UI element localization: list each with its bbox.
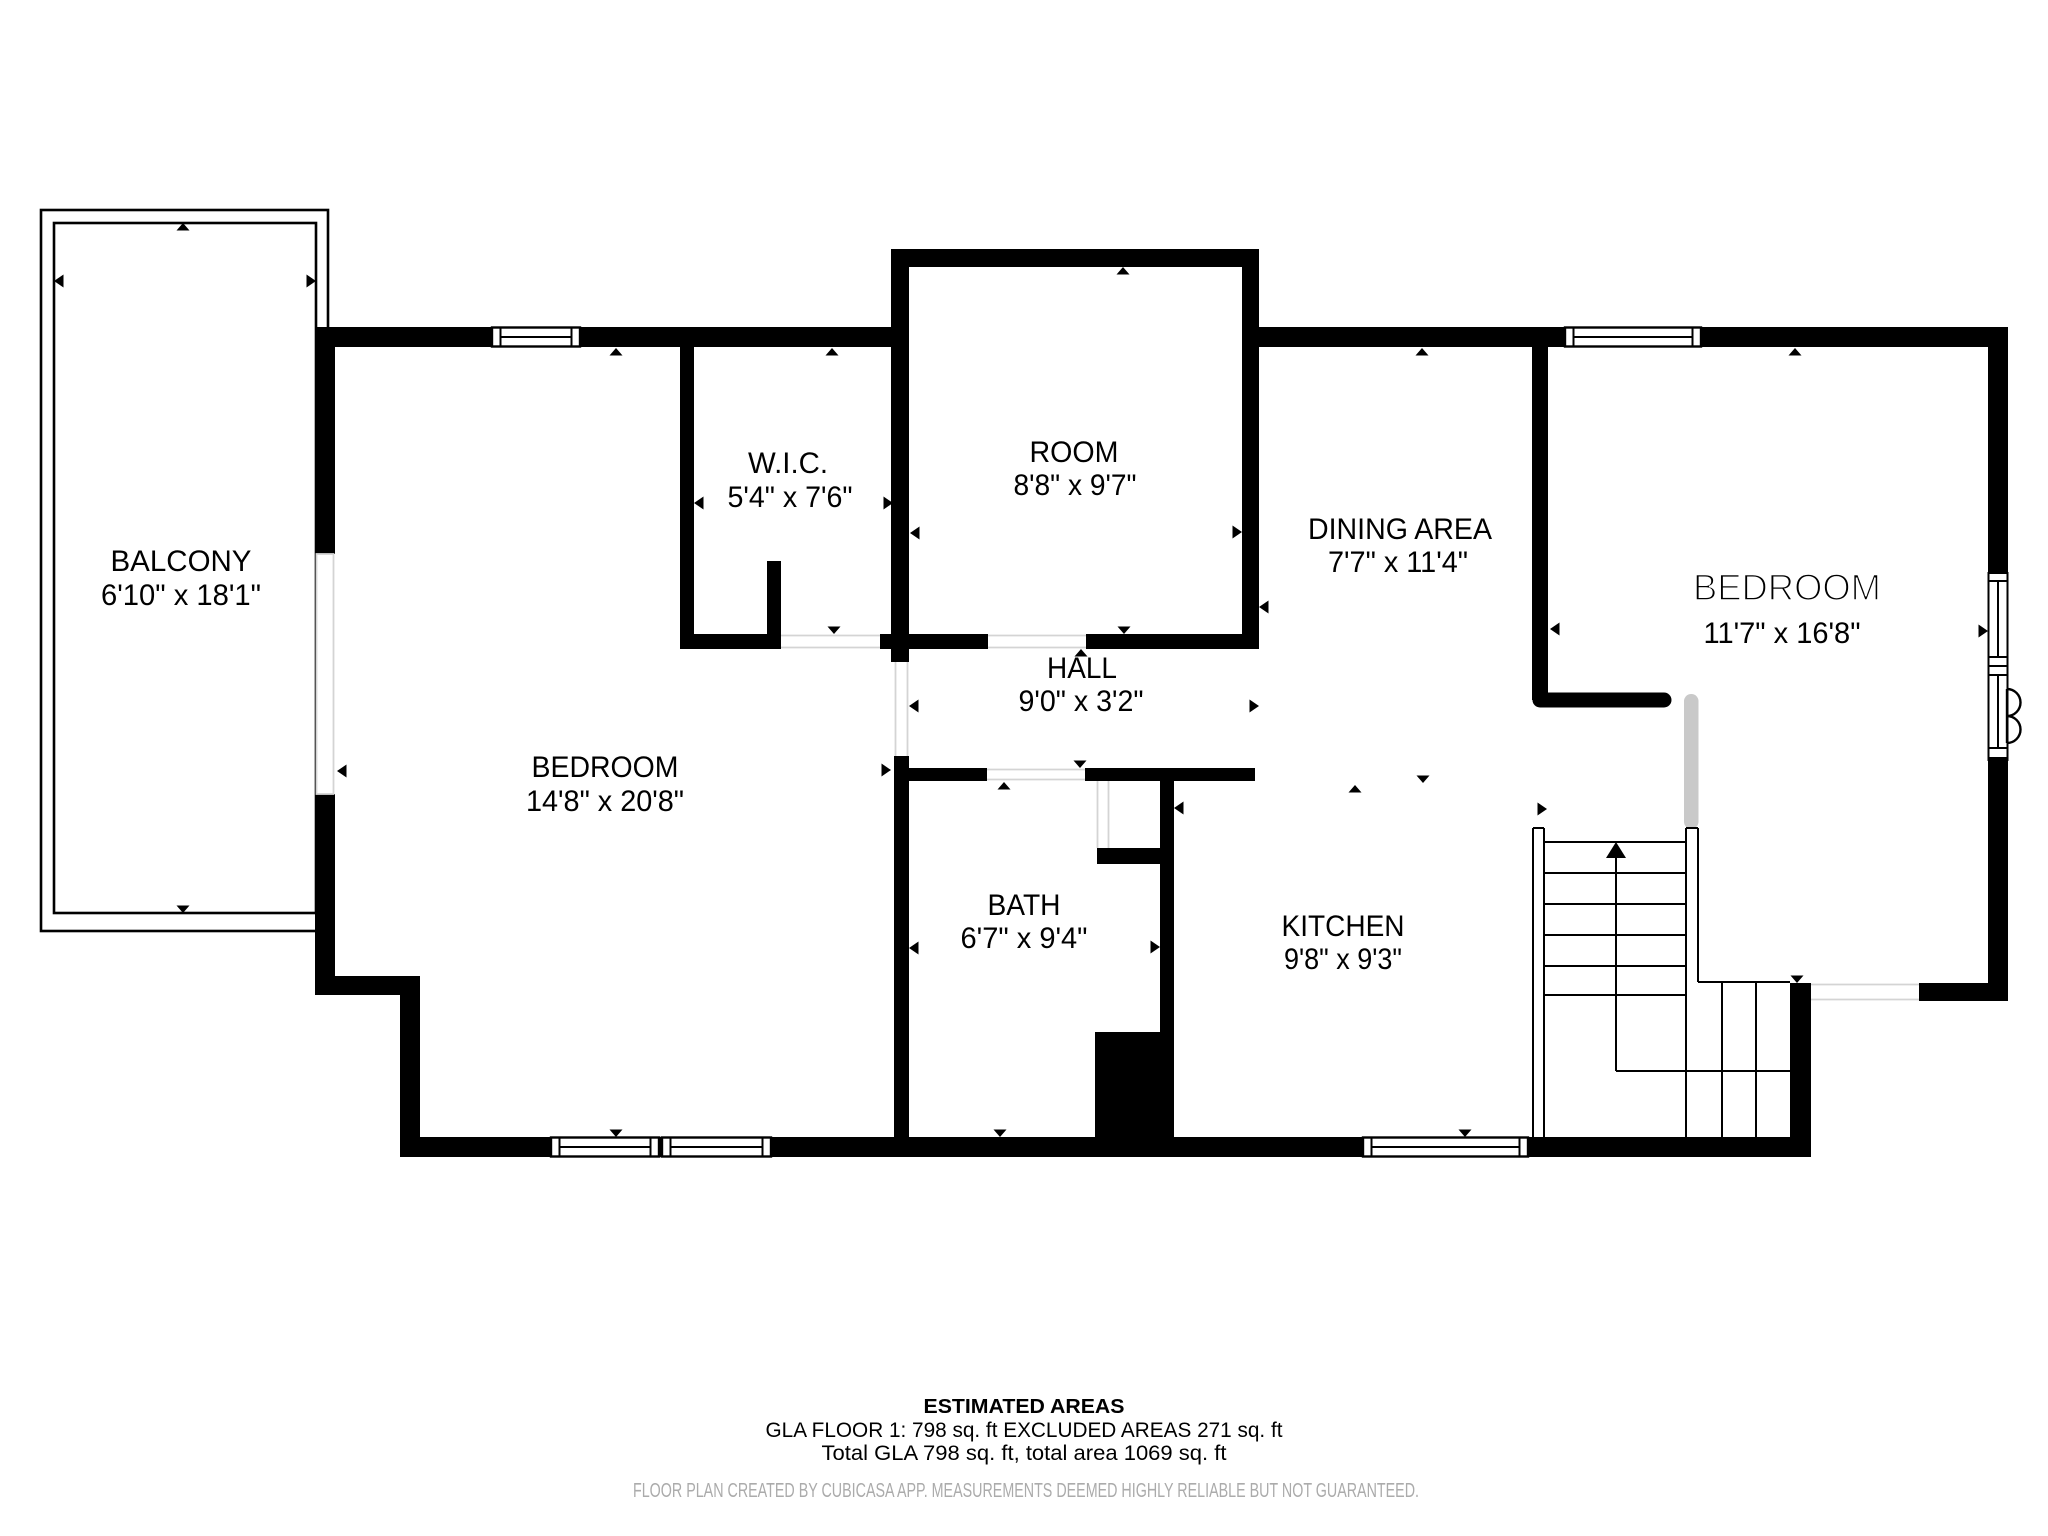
svg-text:6'10" x 18'1": 6'10" x 18'1" xyxy=(101,579,261,612)
svg-text:GLA FLOOR 1: 798 sq. ft EXCLUD: GLA FLOOR 1: 798 sq. ft EXCLUDED AREAS 2… xyxy=(766,1419,1283,1442)
svg-text:14'8" x 20'8": 14'8" x 20'8" xyxy=(526,785,684,818)
svg-text:BEDROOM: BEDROOM xyxy=(1693,567,1881,608)
svg-text:7'7" x 11'4": 7'7" x 11'4" xyxy=(1328,546,1468,579)
svg-text:HALL: HALL xyxy=(1047,652,1117,685)
svg-text:8'8" x 9'7": 8'8" x 9'7" xyxy=(1014,469,1137,502)
svg-text:11'7" x 16'8": 11'7" x 16'8" xyxy=(1704,617,1861,650)
svg-text:FLOOR PLAN CREATED BY CUBICASA: FLOOR PLAN CREATED BY CUBICASA APP. MEAS… xyxy=(633,1480,1419,1502)
svg-text:9'8" x 9'3": 9'8" x 9'3" xyxy=(1284,943,1402,976)
svg-text:5'4" x 7'6": 5'4" x 7'6" xyxy=(728,481,853,514)
svg-text:KITCHEN: KITCHEN xyxy=(1282,910,1405,943)
svg-text:BALCONY: BALCONY xyxy=(111,545,252,578)
svg-text:9'0" x 3'2": 9'0" x 3'2" xyxy=(1019,685,1144,718)
svg-text:DINING AREA: DINING AREA xyxy=(1308,513,1492,546)
svg-text:W.I.C.: W.I.C. xyxy=(748,447,828,480)
svg-text:6'7" x 9'4": 6'7" x 9'4" xyxy=(961,922,1088,955)
svg-text:Total GLA 798 sq. ft, total ar: Total GLA 798 sq. ft, total area 1069 sq… xyxy=(822,1442,1227,1465)
svg-text:BEDROOM: BEDROOM xyxy=(532,751,679,784)
svg-text:ESTIMATED AREAS: ESTIMATED AREAS xyxy=(924,1396,1125,1418)
svg-text:ROOM: ROOM xyxy=(1030,436,1119,469)
svg-text:BATH: BATH xyxy=(988,889,1061,922)
